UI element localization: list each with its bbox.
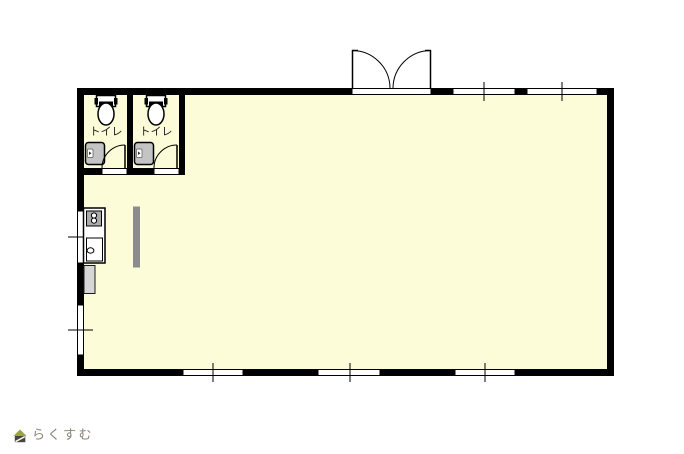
logo-text: らくすむ [32,428,94,444]
window-pane [318,370,380,376]
logo-house-icon [13,429,27,443]
sink-icon [135,143,154,165]
stove-icon [87,211,102,226]
door-arc-left [353,51,391,89]
toilet-label: トイレ [140,125,173,138]
floorplan-canvas: トイレ トイレ [0,0,684,454]
toilet-right-wall [179,95,185,168]
kitchen-unit [84,208,106,263]
door-arc-right [393,51,431,89]
floor-plan-svg: トイレ トイレ [0,0,684,454]
sink-icon [86,143,105,165]
entrance-threshold [352,89,431,95]
toilet-door-opening-2 [154,169,179,175]
toilet-label: トイレ [90,125,123,138]
partition-counter [133,207,140,268]
appliance-box [84,266,95,294]
kitchen-sink-icon [87,238,103,261]
toilet-door-opening-1 [102,169,127,175]
entrance-double-door [352,50,431,95]
toilet-divider-wall [127,95,133,168]
brand-logo: らくすむ [13,428,94,444]
